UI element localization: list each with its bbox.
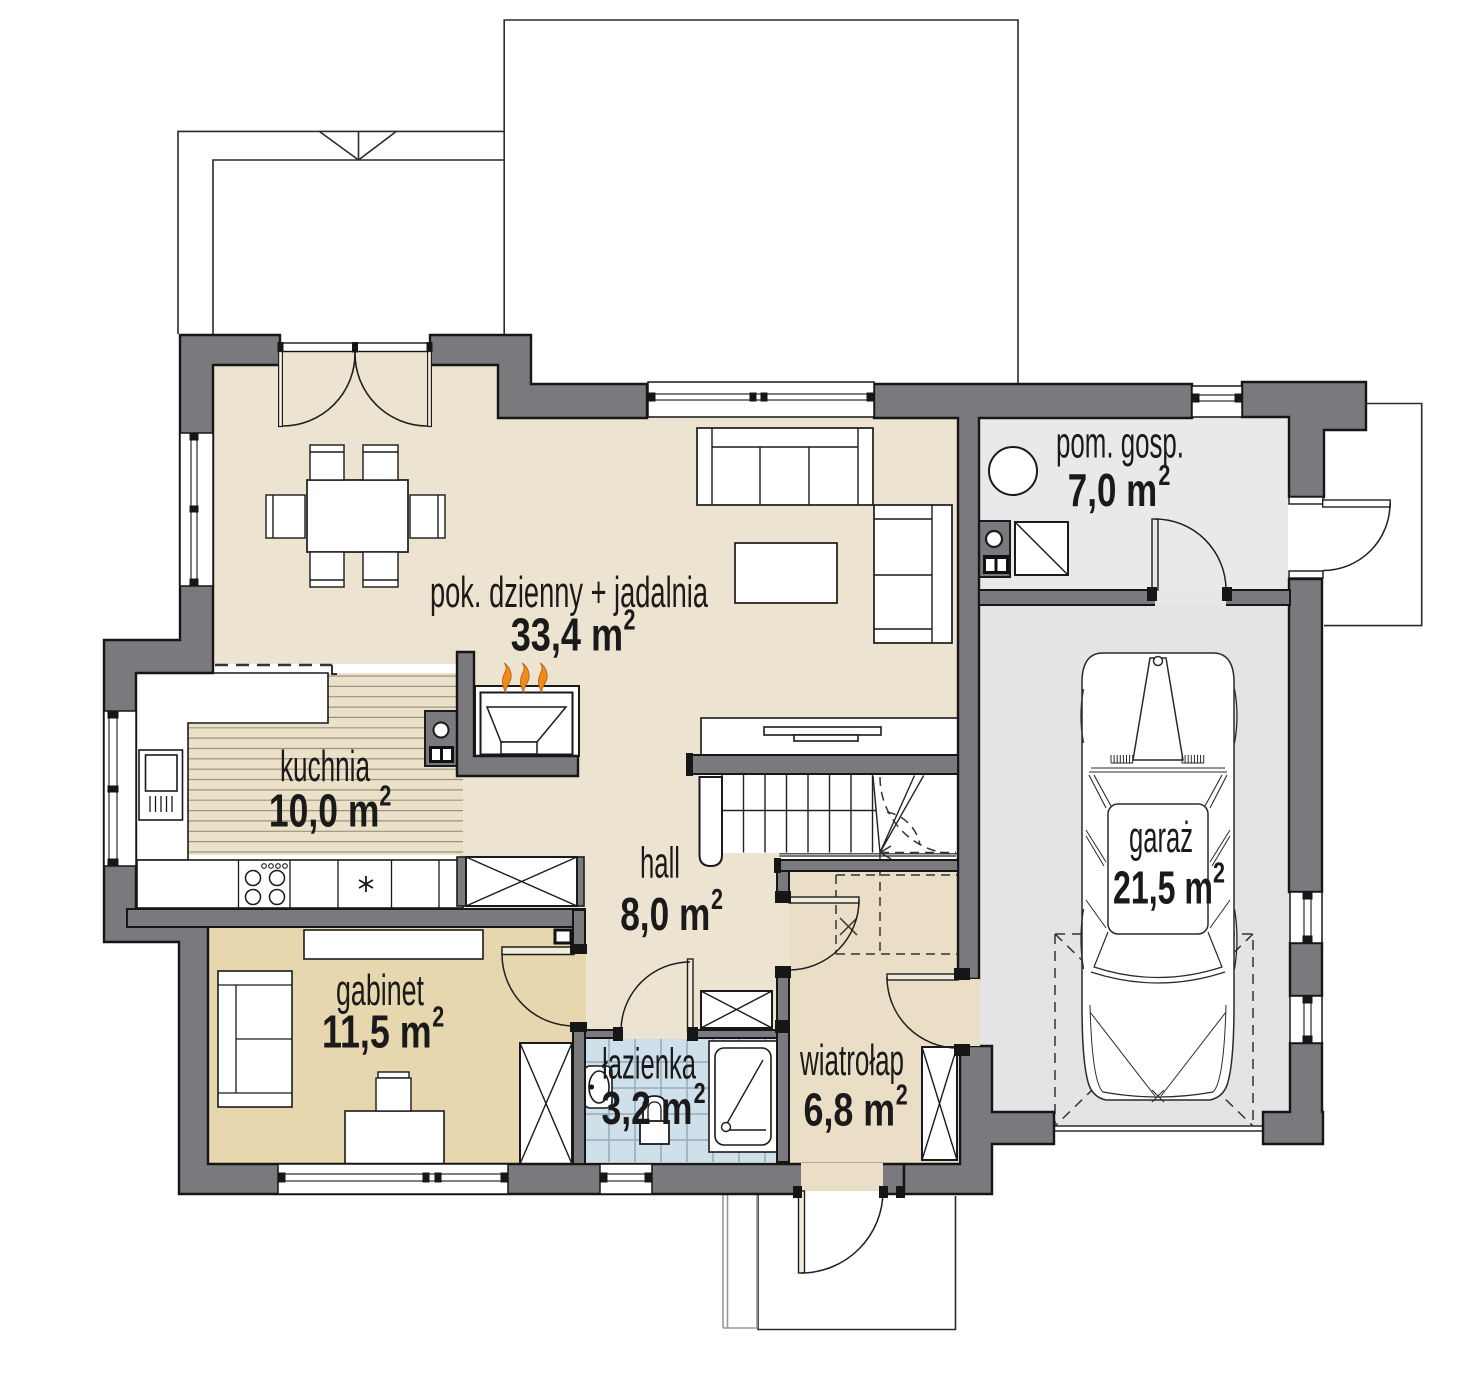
svg-text:2: 2: [379, 781, 391, 813]
svg-text:8,0 m: 8,0 m: [620, 888, 710, 940]
svg-text:2: 2: [694, 1078, 706, 1110]
svg-text:2: 2: [711, 884, 723, 916]
svg-text:11,5 m: 11,5 m: [322, 1006, 432, 1058]
svg-text:21,5 m: 21,5 m: [1113, 862, 1213, 914]
svg-text:2: 2: [896, 1080, 908, 1112]
svg-text:garaż: garaż: [1129, 813, 1193, 862]
svg-text:6,8 m: 6,8 m: [804, 1084, 896, 1136]
svg-text:2: 2: [432, 1002, 444, 1034]
svg-text:2: 2: [1213, 858, 1225, 890]
svg-text:hall: hall: [640, 839, 680, 888]
svg-text:2: 2: [624, 605, 636, 637]
svg-text:33,4 m: 33,4 m: [511, 609, 624, 661]
svg-text:2: 2: [1158, 460, 1170, 492]
svg-text:7,0 m: 7,0 m: [1068, 464, 1157, 516]
svg-text:10,0 m: 10,0 m: [269, 785, 380, 837]
svg-text:3,2 m: 3,2 m: [602, 1082, 693, 1134]
svg-text:wiatrołap: wiatrołap: [799, 1036, 904, 1085]
